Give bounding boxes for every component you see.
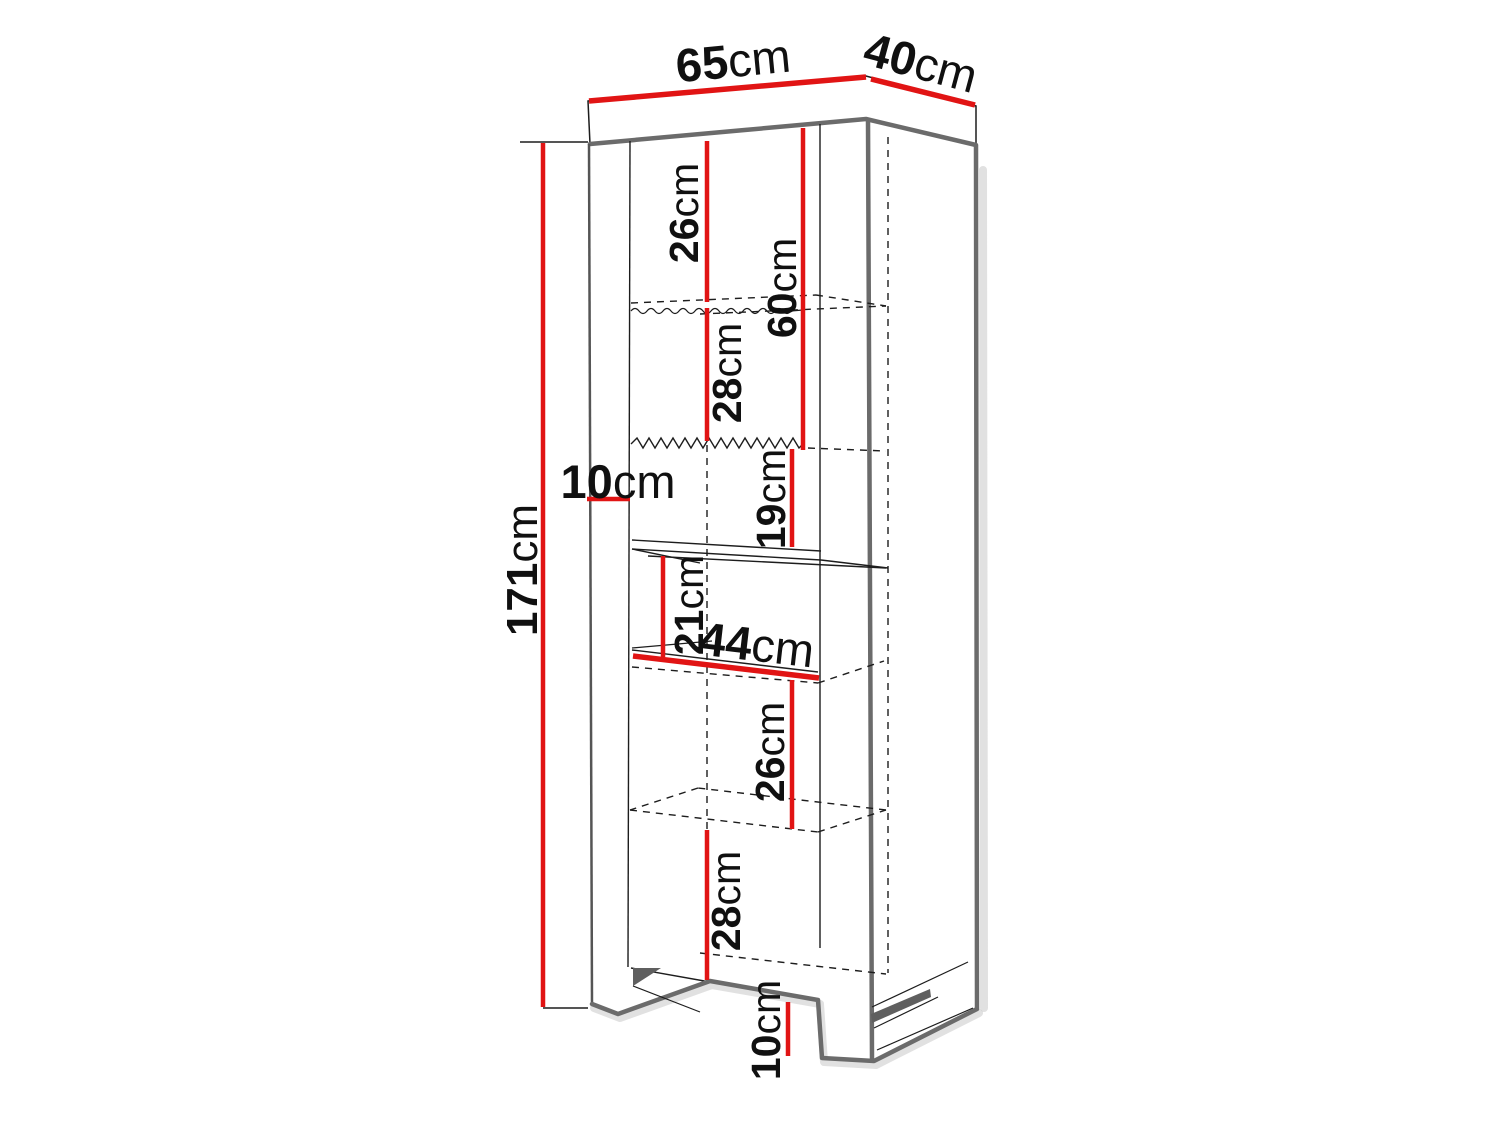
back-right-outer-edge bbox=[976, 146, 977, 1008]
shelf5-left-depth-edge bbox=[630, 788, 698, 810]
shelf1-depth-edge bbox=[816, 295, 886, 306]
front-right-corner-edge bbox=[868, 120, 872, 1059]
shelf5-right-depth-edge bbox=[818, 810, 886, 832]
shelf4-right-depth-edge bbox=[818, 661, 884, 683]
dim-label-28-top: 28cm bbox=[704, 323, 750, 423]
left-base-cutout-shadow bbox=[633, 968, 661, 986]
shelf2-break-line bbox=[631, 438, 804, 448]
dim-label-10-bottom: 10cm bbox=[743, 980, 789, 1080]
dim-label-26-bottom: 26cm bbox=[747, 702, 793, 802]
front-left-outer-edge bbox=[589, 144, 592, 1004]
right-edge-shadow bbox=[983, 170, 984, 1008]
front-left-inner-edge bbox=[628, 141, 630, 967]
dim-label-26-top: 26cm bbox=[661, 163, 707, 263]
cabinet-dimension-diagram: 65cm 40cm 171cm 26cm 28cm 60cm 10cm 19cm… bbox=[0, 0, 1500, 1125]
dim-label-19: 19cm bbox=[748, 449, 794, 549]
dimension-labels: 65cm 40cm 171cm 26cm 28cm 60cm 10cm 19cm… bbox=[498, 22, 984, 1081]
diagram-canvas: 65cm 40cm 171cm 26cm 28cm 60cm 10cm 19cm… bbox=[0, 0, 1500, 1125]
right-base-cutout-shadow bbox=[871, 989, 931, 1023]
dim-label-10-side: 10cm bbox=[561, 455, 676, 508]
floor-back-edge bbox=[700, 953, 886, 974]
dim-label-width-65: 65cm bbox=[673, 28, 792, 92]
dim-label-height-171: 171cm bbox=[498, 504, 547, 636]
dim-label-60: 60cm bbox=[759, 238, 805, 338]
dim-label-28-bottom: 28cm bbox=[703, 851, 749, 951]
